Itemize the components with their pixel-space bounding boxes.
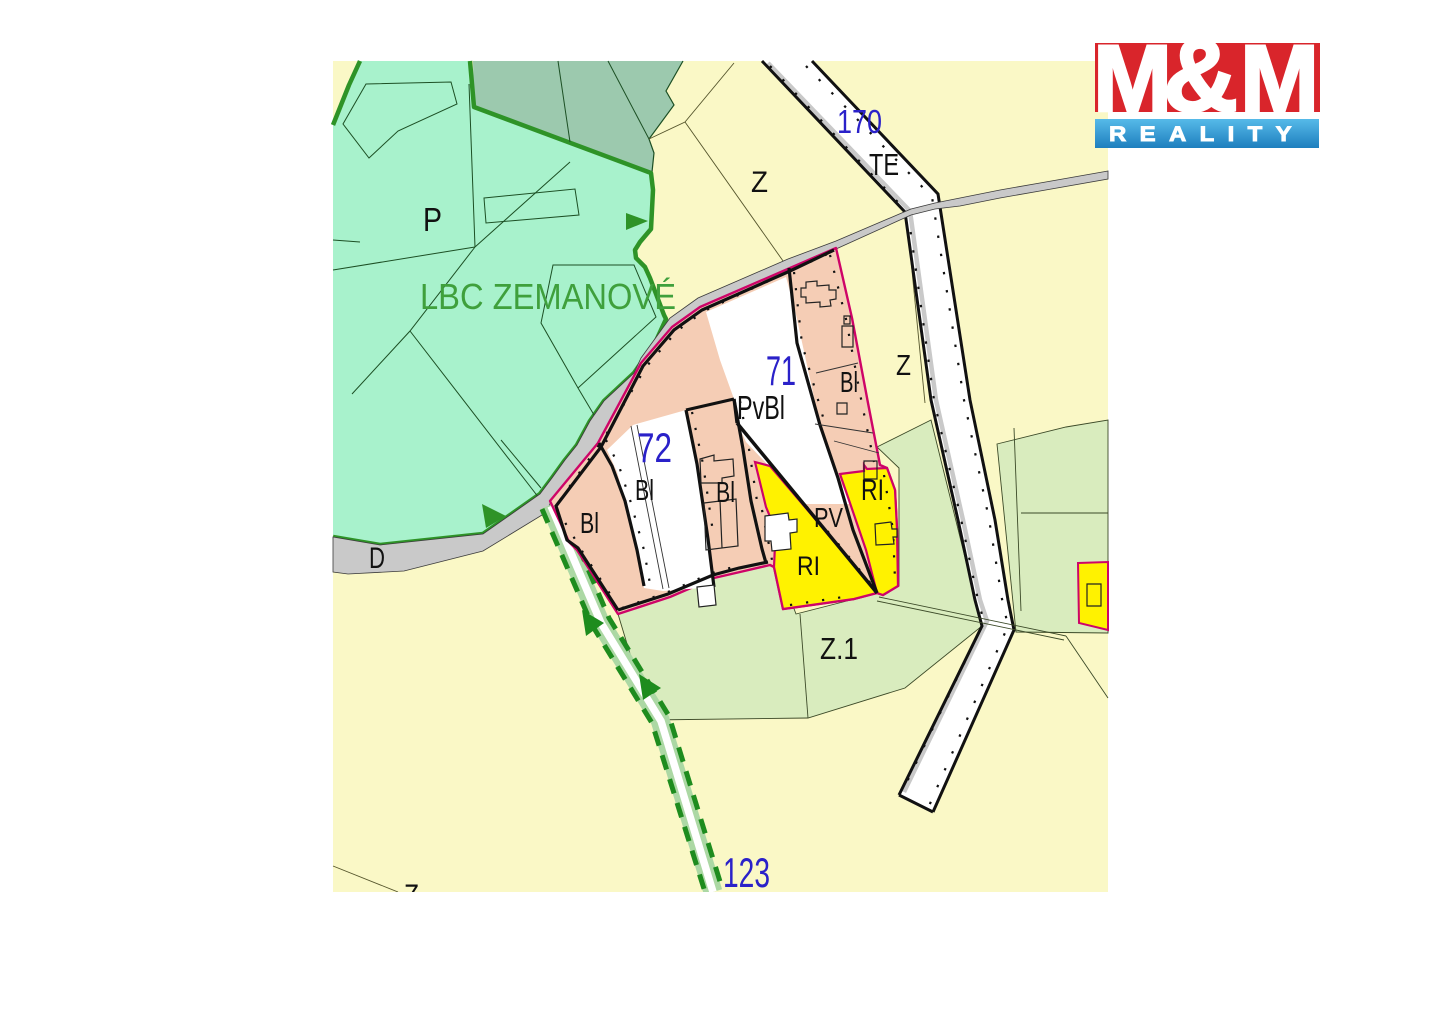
- svg-text:PV: PV: [814, 502, 843, 533]
- svg-text:Bl: Bl: [840, 367, 858, 399]
- svg-text:M: M: [1240, 26, 1319, 132]
- svg-text:72: 72: [637, 424, 672, 471]
- svg-text:71: 71: [766, 347, 796, 394]
- svg-text:D: D: [369, 542, 385, 575]
- svg-text:TE: TE: [869, 147, 899, 182]
- svg-text:RI: RI: [861, 474, 884, 507]
- svg-text:Bl: Bl: [580, 508, 599, 540]
- svg-text:REALITY: REALITY: [1109, 122, 1305, 146]
- svg-text:170: 170: [837, 103, 882, 140]
- svg-text:M: M: [1093, 26, 1172, 132]
- svg-text:123: 123: [723, 849, 770, 896]
- svg-text:Bl: Bl: [716, 477, 735, 509]
- svg-text:Z.1: Z.1: [820, 631, 858, 666]
- svg-text:LBC ZEMANOVÉ: LBC ZEMANOVÉ: [420, 276, 676, 317]
- svg-text:RI: RI: [797, 551, 820, 581]
- svg-text:PvBl: PvBl: [737, 389, 785, 426]
- svg-text:Z: Z: [751, 166, 768, 199]
- svg-text:P: P: [423, 201, 442, 238]
- svg-text:&: &: [1163, 18, 1238, 134]
- svg-text:Bl: Bl: [635, 475, 654, 507]
- svg-text:Z: Z: [896, 350, 911, 382]
